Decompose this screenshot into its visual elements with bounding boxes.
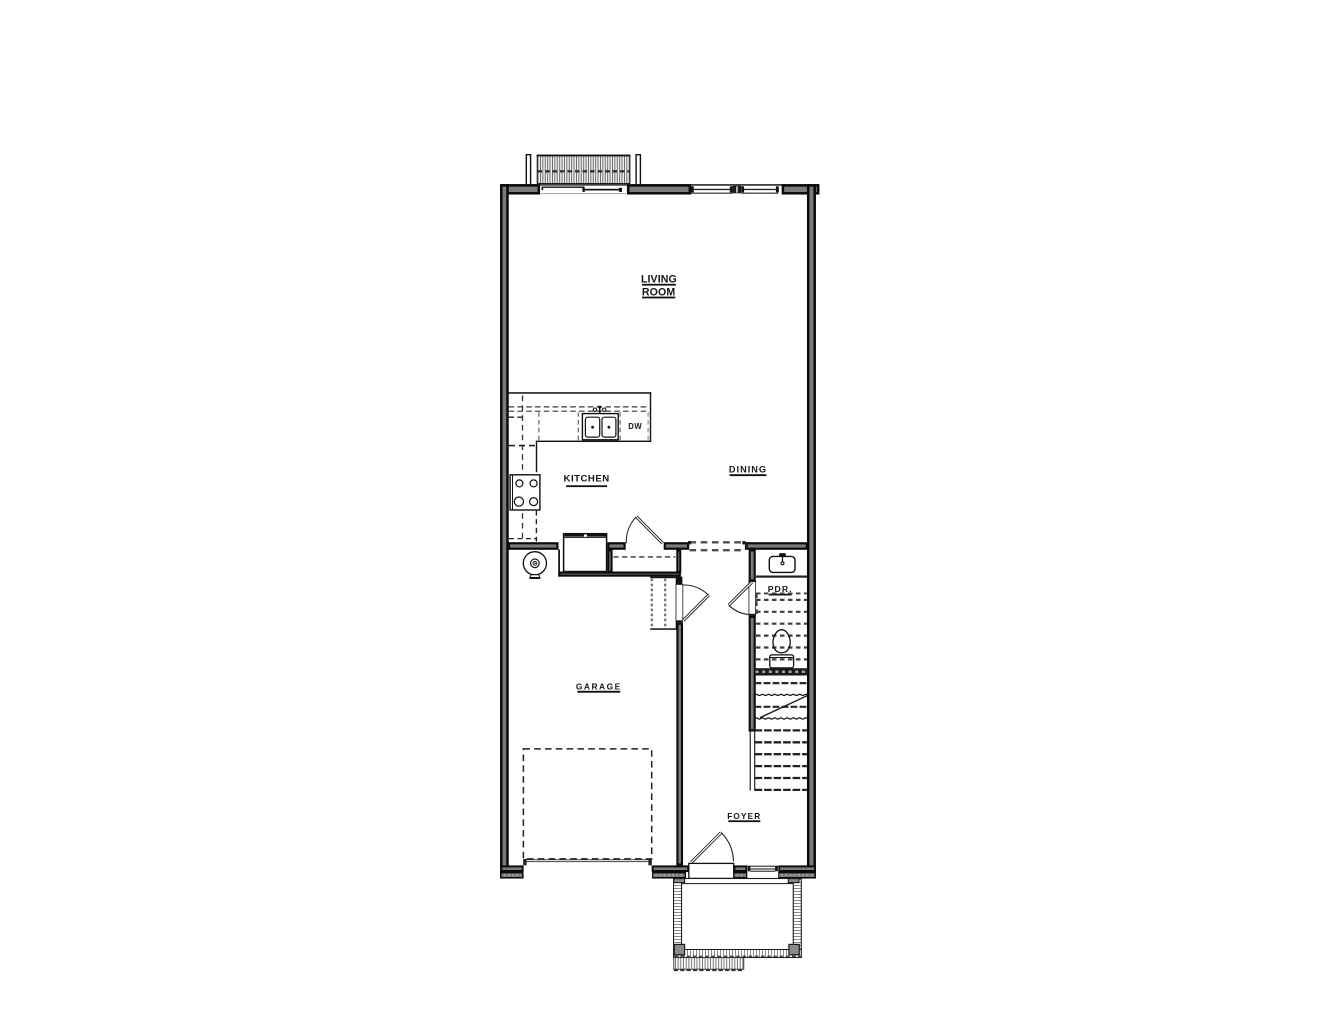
- svg-text:PDR.: PDR.: [768, 584, 793, 594]
- svg-text:DINING: DINING: [729, 465, 767, 475]
- svg-text:GARAGE: GARAGE: [576, 682, 622, 692]
- svg-text:DW: DW: [628, 422, 642, 431]
- svg-text:FOYER: FOYER: [727, 812, 761, 821]
- svg-text:KITCHEN: KITCHEN: [564, 474, 610, 485]
